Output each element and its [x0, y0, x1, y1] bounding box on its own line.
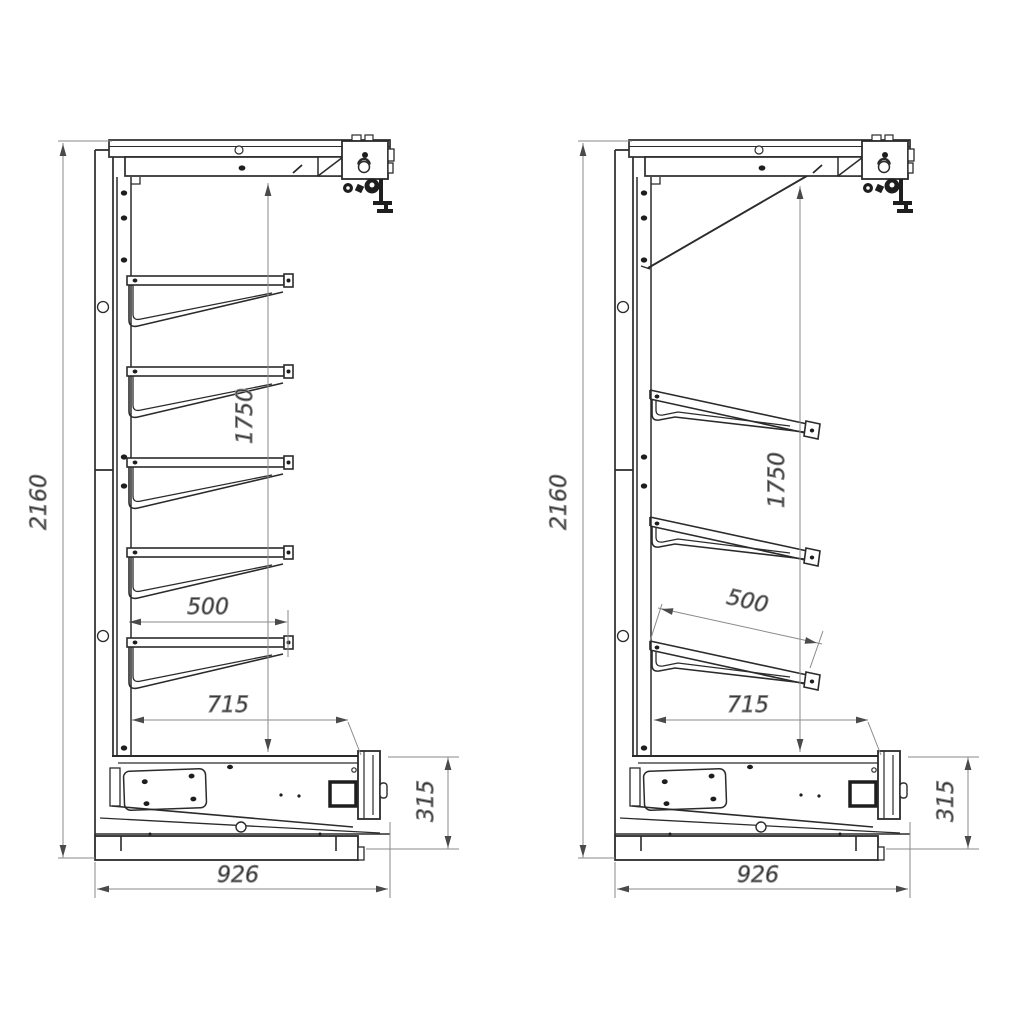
arrow-right: [896, 886, 908, 893]
left-overall-height-label: 2160: [27, 474, 52, 530]
left-shelf-depth-label: 500: [187, 595, 229, 620]
arrow-left: [617, 886, 629, 893]
technical-drawing-page: 2160 1750 500 715: [0, 0, 1024, 1024]
arrow-right: [275, 619, 287, 626]
arrow-right: [805, 637, 818, 646]
right-shelf-1: [650, 390, 820, 439]
left-overall-depth-label: 926: [217, 863, 259, 888]
arrow-up: [445, 758, 452, 770]
right-dimensions: 2160 1750 500 715: [547, 141, 979, 898]
arrow-up: [60, 144, 67, 156]
right-shelf-2: [650, 517, 820, 566]
right-base-height-label: 315: [934, 780, 959, 822]
arrow-left: [654, 717, 666, 724]
left-inner-height-label: 1750: [233, 388, 258, 444]
arrow-up: [265, 184, 272, 196]
arrow-down: [445, 836, 452, 848]
arrow-left: [97, 886, 109, 893]
arrow-down: [265, 739, 272, 751]
arrow-down: [60, 845, 67, 857]
left-dim-overall-height: 2160: [27, 141, 112, 858]
arrow-down: [965, 836, 972, 848]
right-overall-height-label: 2160: [547, 474, 572, 530]
left-dim-shelf-reach: 715: [132, 693, 361, 755]
arrow-up: [580, 144, 587, 156]
arrow-left: [660, 606, 673, 615]
right-shelf-3: [650, 641, 820, 690]
arrow-right: [856, 717, 868, 724]
right-wall-post: [615, 150, 660, 836]
arrow-left: [132, 717, 144, 724]
left-shelf-reach-label: 715: [207, 693, 249, 718]
arrow-up: [797, 187, 804, 199]
arrow-down: [797, 739, 804, 751]
arrow-down: [580, 845, 587, 857]
left-view: 2160 1750 500 715: [27, 135, 459, 898]
right-diagonal-brace: [648, 173, 812, 268]
left-canopy: [109, 135, 394, 211]
arrow-right: [336, 717, 348, 724]
right-dim-shelf-reach: 715: [654, 693, 881, 755]
left-dimensions: 2160 1750 500 715: [27, 141, 459, 898]
right-overall-depth-label: 926: [737, 863, 779, 888]
left-base-height-label: 315: [414, 780, 439, 822]
left-base-unit: [95, 751, 390, 860]
right-shelf-reach-label: 715: [727, 693, 769, 718]
arrow-up: [965, 758, 972, 770]
right-canopy: [629, 135, 914, 211]
right-shelf-depth-label: 500: [724, 585, 770, 618]
right-dim-overall-height: 2160: [547, 141, 632, 858]
technical-drawing-canvas: 2160 1750 500 715: [0, 0, 1024, 1024]
right-base-unit: [615, 751, 910, 860]
right-inner-height-label: 1750: [765, 452, 790, 508]
right-view: 2160 1750 500 715: [547, 135, 979, 898]
arrow-right: [376, 886, 388, 893]
